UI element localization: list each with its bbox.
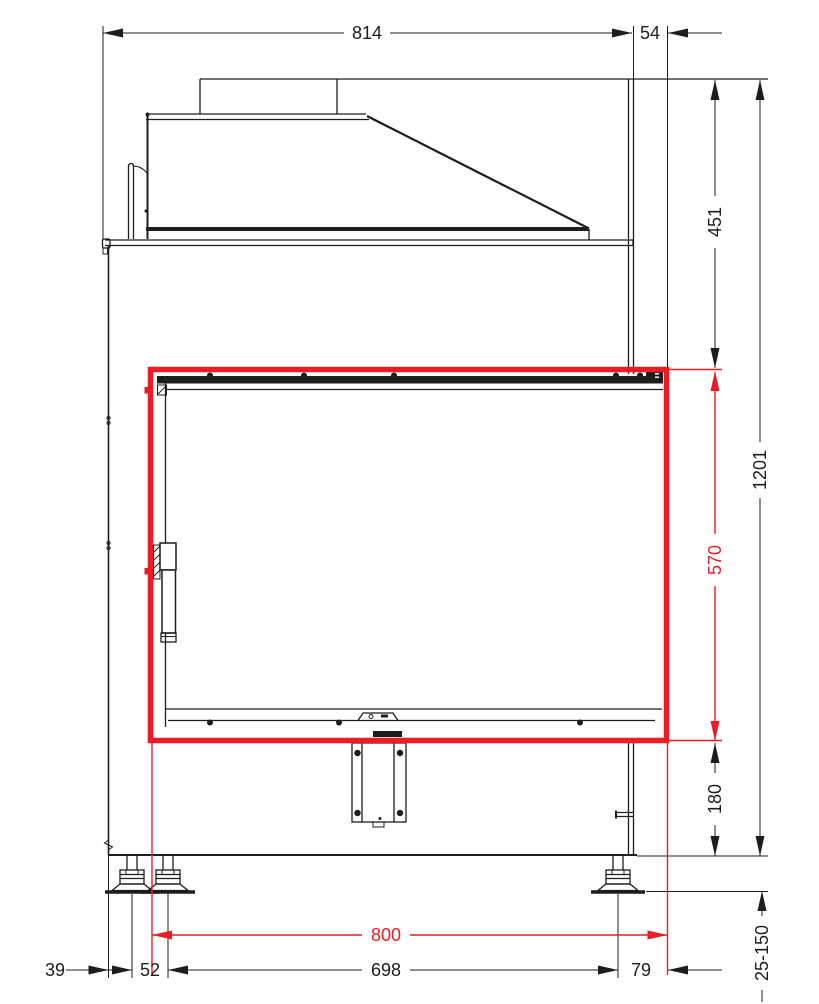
canvas-background (0, 0, 819, 1004)
frame-hinge-tick-bottom (145, 568, 151, 575)
burner-slot (373, 731, 402, 737)
frame-hinge-tick-top (145, 387, 151, 394)
dim-frame-height-label: 570 (705, 545, 725, 575)
fireplace-technical-drawing: 814 54 451 1201 570 180 (0, 0, 819, 1004)
dim-front-feet-spacing: 52 (140, 960, 160, 980)
dim-foot-adjust-range-label: 25-150 (752, 925, 772, 981)
dim-top-section-height-label: 451 (705, 207, 725, 237)
dim-frame-width-label: 800 (371, 925, 401, 945)
dim-front-feet-spacing-label: 52 (140, 960, 160, 980)
dim-overall-height-label: 1201 (750, 450, 770, 490)
dim-base-section-height-label: 180 (705, 784, 725, 814)
technical-drawing-page: 814 54 451 1201 570 180 (0, 0, 819, 1004)
door-top-trim-bar (157, 376, 663, 384)
dim-feet-span-label: 698 (371, 960, 401, 980)
dim-edge-to-foot-label: 39 (45, 960, 65, 980)
dim-overall-width-label: 814 (352, 23, 382, 43)
dim-rear-offset-label: 54 (640, 23, 660, 43)
handle-grip (162, 570, 176, 633)
dim-foot-to-frame-label: 79 (631, 960, 651, 980)
handle-top-block (160, 543, 176, 570)
